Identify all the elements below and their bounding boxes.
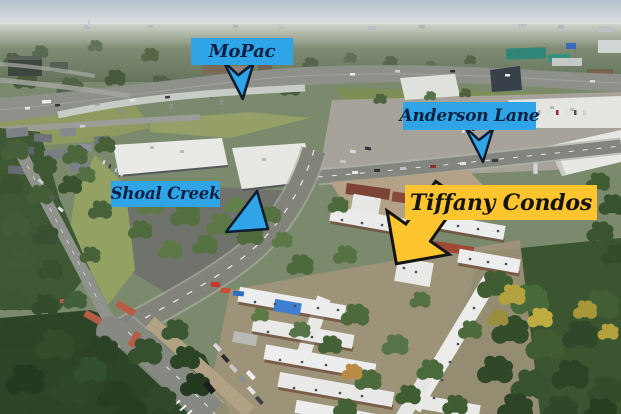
label-tiffany-condos-text: Tiffany Condos xyxy=(410,192,592,214)
label-mopac: MoPac xyxy=(191,38,293,65)
annotated-aerial-photo: MoPac Anderson Lane Shoal Creek Tiffany … xyxy=(0,0,621,414)
anderson-lane-arrow xyxy=(465,127,493,162)
mopac-arrow xyxy=(223,61,253,99)
label-mopac-text: MoPac xyxy=(209,43,276,61)
label-anderson-lane: Anderson Lane xyxy=(403,102,536,130)
label-tiffany-condos: Tiffany Condos xyxy=(405,185,597,220)
label-anderson-lane-text: Anderson Lane xyxy=(400,108,540,125)
label-shoal-creek: Shoal Creek xyxy=(111,181,220,207)
shoal-creek-arrow xyxy=(226,191,268,232)
label-shoal-creek-text: Shoal Creek xyxy=(111,186,221,203)
